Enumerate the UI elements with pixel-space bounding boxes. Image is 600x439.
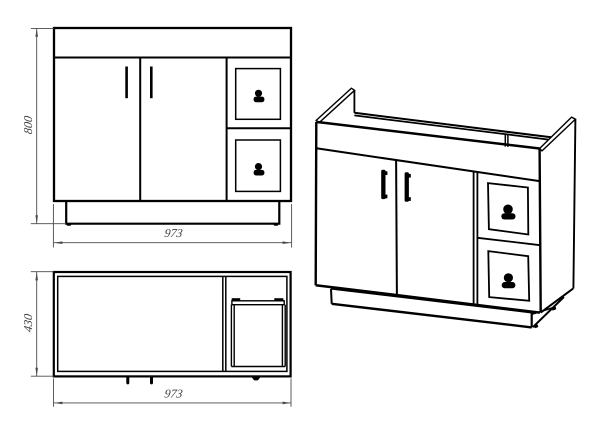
svg-text:800: 800 [21,115,35,135]
svg-text:973: 973 [164,387,184,401]
svg-text:430: 430 [21,313,35,333]
svg-text:973: 973 [164,226,184,240]
